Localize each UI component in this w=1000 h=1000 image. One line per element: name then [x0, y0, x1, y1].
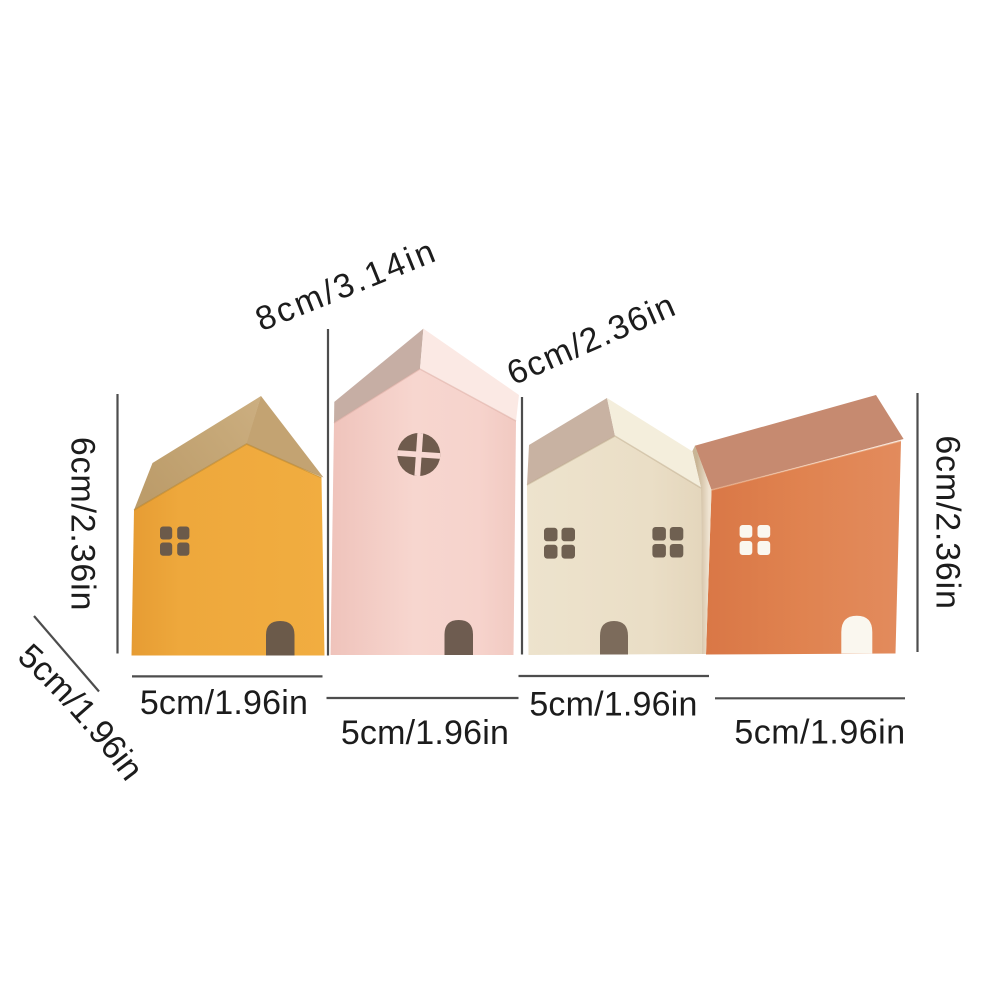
svg-text:6cm/2.36in: 6cm/2.36in — [64, 437, 102, 611]
svg-text:5cm/1.96in: 5cm/1.96in — [140, 684, 308, 722]
svg-text:5cm/1.96in: 5cm/1.96in — [734, 714, 905, 752]
svg-text:5cm/1.96in: 5cm/1.96in — [341, 714, 509, 752]
svg-text:6cm/2.36in: 6cm/2.36in — [929, 435, 967, 609]
svg-text:5cm/1.96in: 5cm/1.96in — [529, 686, 697, 724]
